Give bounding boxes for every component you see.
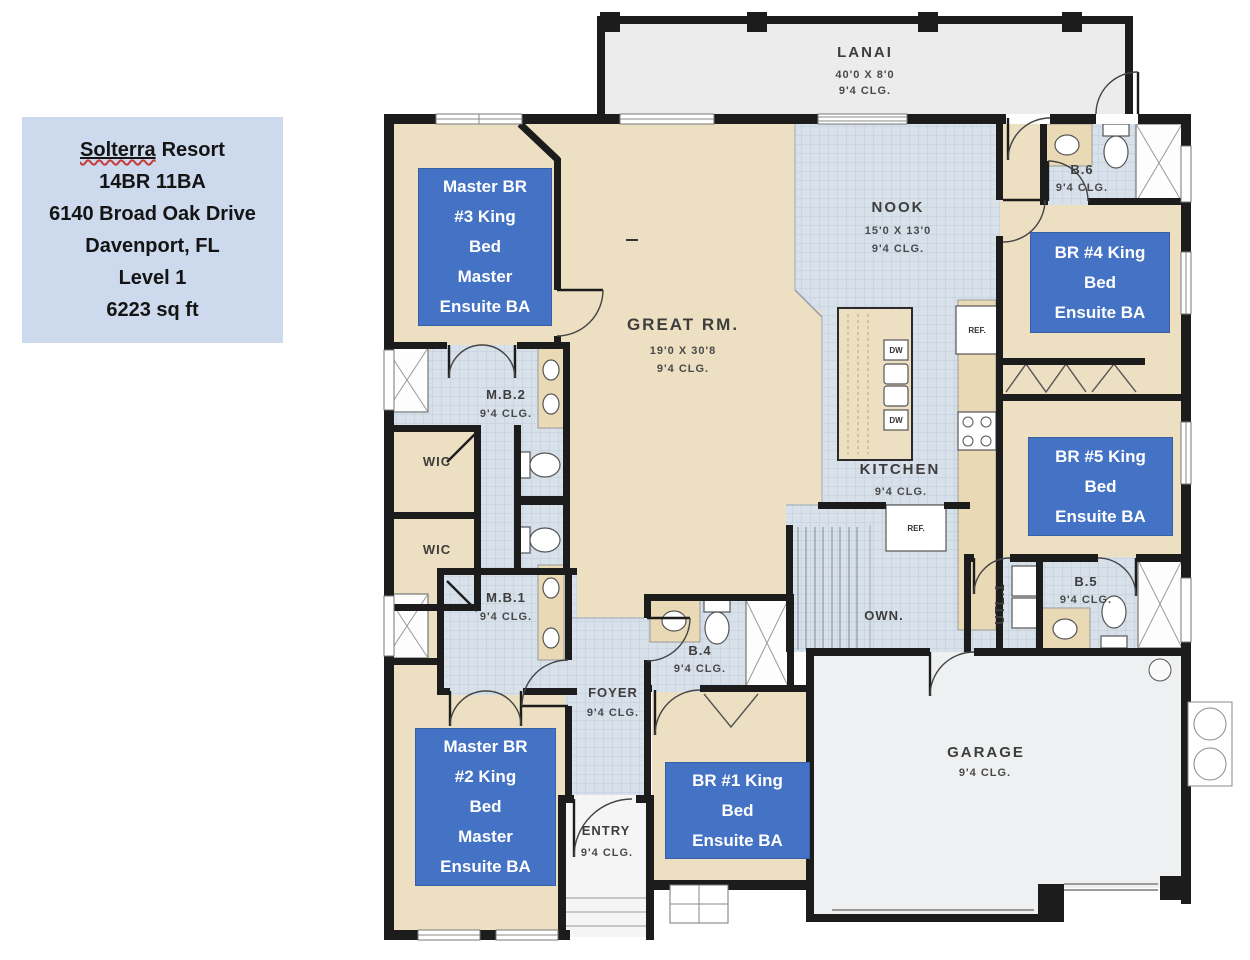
room-label-b4: B.4 [688,643,711,658]
window-icon [496,930,558,940]
bed-label-br-5: BR #5 King Bed Ensuite BA [1028,437,1173,536]
room-label-garage: GARAGE [947,744,1025,761]
property-city: Davenport, FL [22,230,283,262]
room-clg-mb1: 9'4 CLG. [480,611,532,623]
fridge-label: REF. [907,524,924,533]
room-clg-nook: 9'4 CLG. [872,243,924,255]
room-label-great-room: GREAT RM. [627,315,739,334]
room-label-nook: NOOK [872,199,925,216]
toilet-icon [704,600,730,644]
window-icon [384,350,394,410]
bay-window-icon [670,885,728,923]
room-clg-foyer: 9'4 CLG. [587,707,639,719]
room-label-utility: UTL.1 [992,583,1007,624]
property-level: Level 1 [22,262,283,294]
window-icon [1181,146,1191,202]
property-address: 6140 Broad Oak Drive [22,198,283,230]
sliding-door-icon [818,114,907,124]
dishwasher-label: DW [889,346,903,355]
room-dim-nook: 15'0 X 13'0 [865,225,931,237]
window-icon [1181,252,1191,314]
room-label-b5: B.5 [1074,574,1097,589]
vanity-sink-icon [538,348,564,428]
room-label-b6: B.6 [1070,162,1093,177]
outdoor-units [1188,702,1232,786]
window-icon [418,930,480,940]
window-icon [620,114,714,124]
room-clg-lanai: 9'4 CLG. [839,85,891,97]
room-label-mb1: M.B.1 [486,590,526,605]
vanity-sink-icon [538,565,564,660]
window-icon [384,596,394,656]
room-clg-b5: 9'4 CLG. [1060,594,1112,606]
sink-basin-icon [884,364,908,384]
shower-icon [1138,560,1182,648]
bed-label-br-4: BR #4 King Bed Ensuite BA [1030,232,1170,333]
sink-basin-icon [884,386,908,406]
ac-pad [1188,702,1232,786]
room-label-stairs: OWN. [864,608,903,623]
room-label-kitchen: KITCHEN [860,461,941,478]
washer-icon [1012,566,1038,596]
room-label-mb2: M.B.2 [486,387,526,402]
room-label-wic1: WIC [423,454,451,469]
dishwasher-label: DW [889,416,903,425]
bed-label-br-1: BR #1 King Bed Ensuite BA [665,762,810,859]
room-clg-kitchen: 9'4 CLG. [875,486,927,498]
property-sqft: 6223 sq ft [22,294,283,326]
property-info-box: SolterraResort 14BR 11BA 6140 Broad Oak … [22,117,283,343]
room-label-lanai: LANAI [837,44,893,61]
door-opening [1096,114,1138,124]
room-dim-lanai: 40'0 X 8'0 [835,69,894,81]
room-label-entry: ENTRY [582,823,631,838]
window-icon [1181,422,1191,484]
toilet-icon [1103,124,1129,168]
room-clg-mb2: 9'4 CLG. [480,408,532,420]
room-clg-b6: 9'4 CLG. [1056,182,1108,194]
fridge-label: REF. [968,326,985,335]
shower-icon [1136,124,1182,202]
vanity-sink-icon [1042,608,1090,650]
lanai-area [597,12,1133,114]
room-clg-great-room: 9'4 CLG. [657,363,709,375]
vanity-sink-icon [1044,124,1092,166]
bed-label-master-br-2: Master BR #2 King Bed Master Ensuite BA [415,728,556,886]
room-clg-b4: 9'4 CLG. [674,663,726,675]
room-dim-great-room: 19'0 X 30'8 [650,345,716,357]
toilet-icon [518,452,560,478]
floor-plan-page: LANAI 40'0 X 8'0 9'4 CLG. GREAT RM. 19'0… [0,0,1250,960]
dryer-icon [1012,598,1038,628]
water-heater-icon [1149,659,1171,681]
window-icon [1181,578,1191,642]
bed-label-master-br-3: Master BR #3 King Bed Master Ensuite BA [418,168,552,326]
property-beds-baths: 14BR 11BA [22,166,283,198]
room-label-foyer: FOYER [588,685,638,700]
room-label-wic2: WIC [423,542,451,557]
vanity-sink-icon [650,600,700,642]
toilet-icon [518,527,560,553]
room-clg-entry: 9'4 CLG. [581,847,633,859]
resort-name: Solterra [80,139,156,161]
room-clg-garage: 9'4 CLG. [959,767,1011,779]
property-title: SolterraResort [22,134,283,166]
shower-icon [746,600,788,686]
window-icon [436,114,522,124]
